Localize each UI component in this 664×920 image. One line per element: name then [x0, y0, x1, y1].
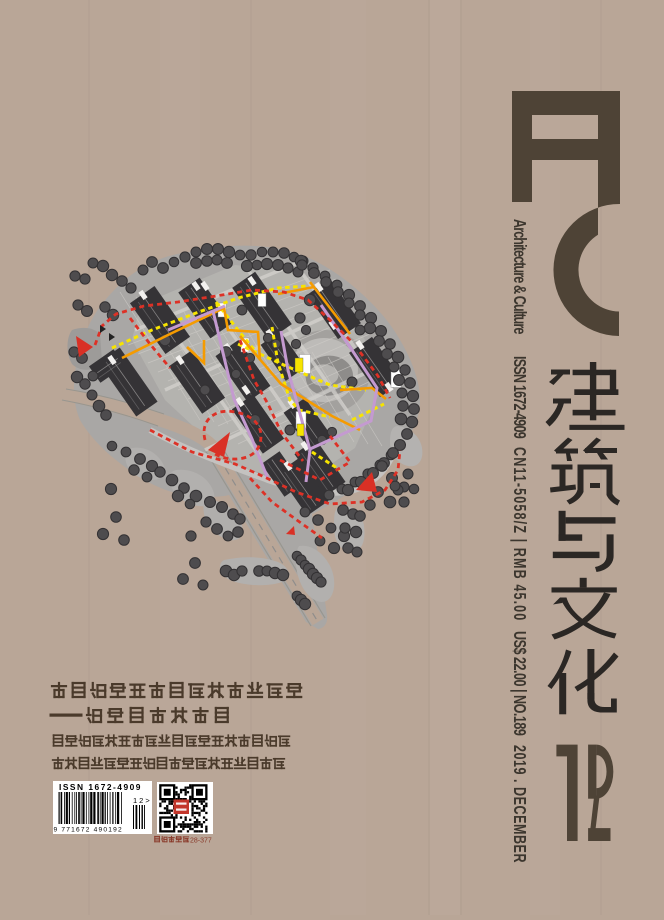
svg-text:Architecture & Culture: Architecture & Culture: [509, 219, 528, 334]
svg-text:9 771672 490192: 9 771672 490192: [54, 827, 123, 834]
svg-text:2019 . DECEMBER: 2019 . DECEMBER: [509, 745, 528, 863]
svg-text:28-377: 28-377: [190, 838, 212, 845]
svg-text:CN11-5058/Z | RMB 45.00: CN11-5058/Z | RMB 45.00: [509, 447, 528, 621]
svg-text:12>: 12>: [133, 796, 152, 805]
svg-text:ISSN 1672-4909: ISSN 1672-4909: [59, 782, 142, 792]
svg-text:ISSN 1672-4909: ISSN 1672-4909: [509, 356, 528, 438]
svg-text:US$ 22.00 | NO.189: US$ 22.00 | NO.189: [509, 631, 528, 736]
